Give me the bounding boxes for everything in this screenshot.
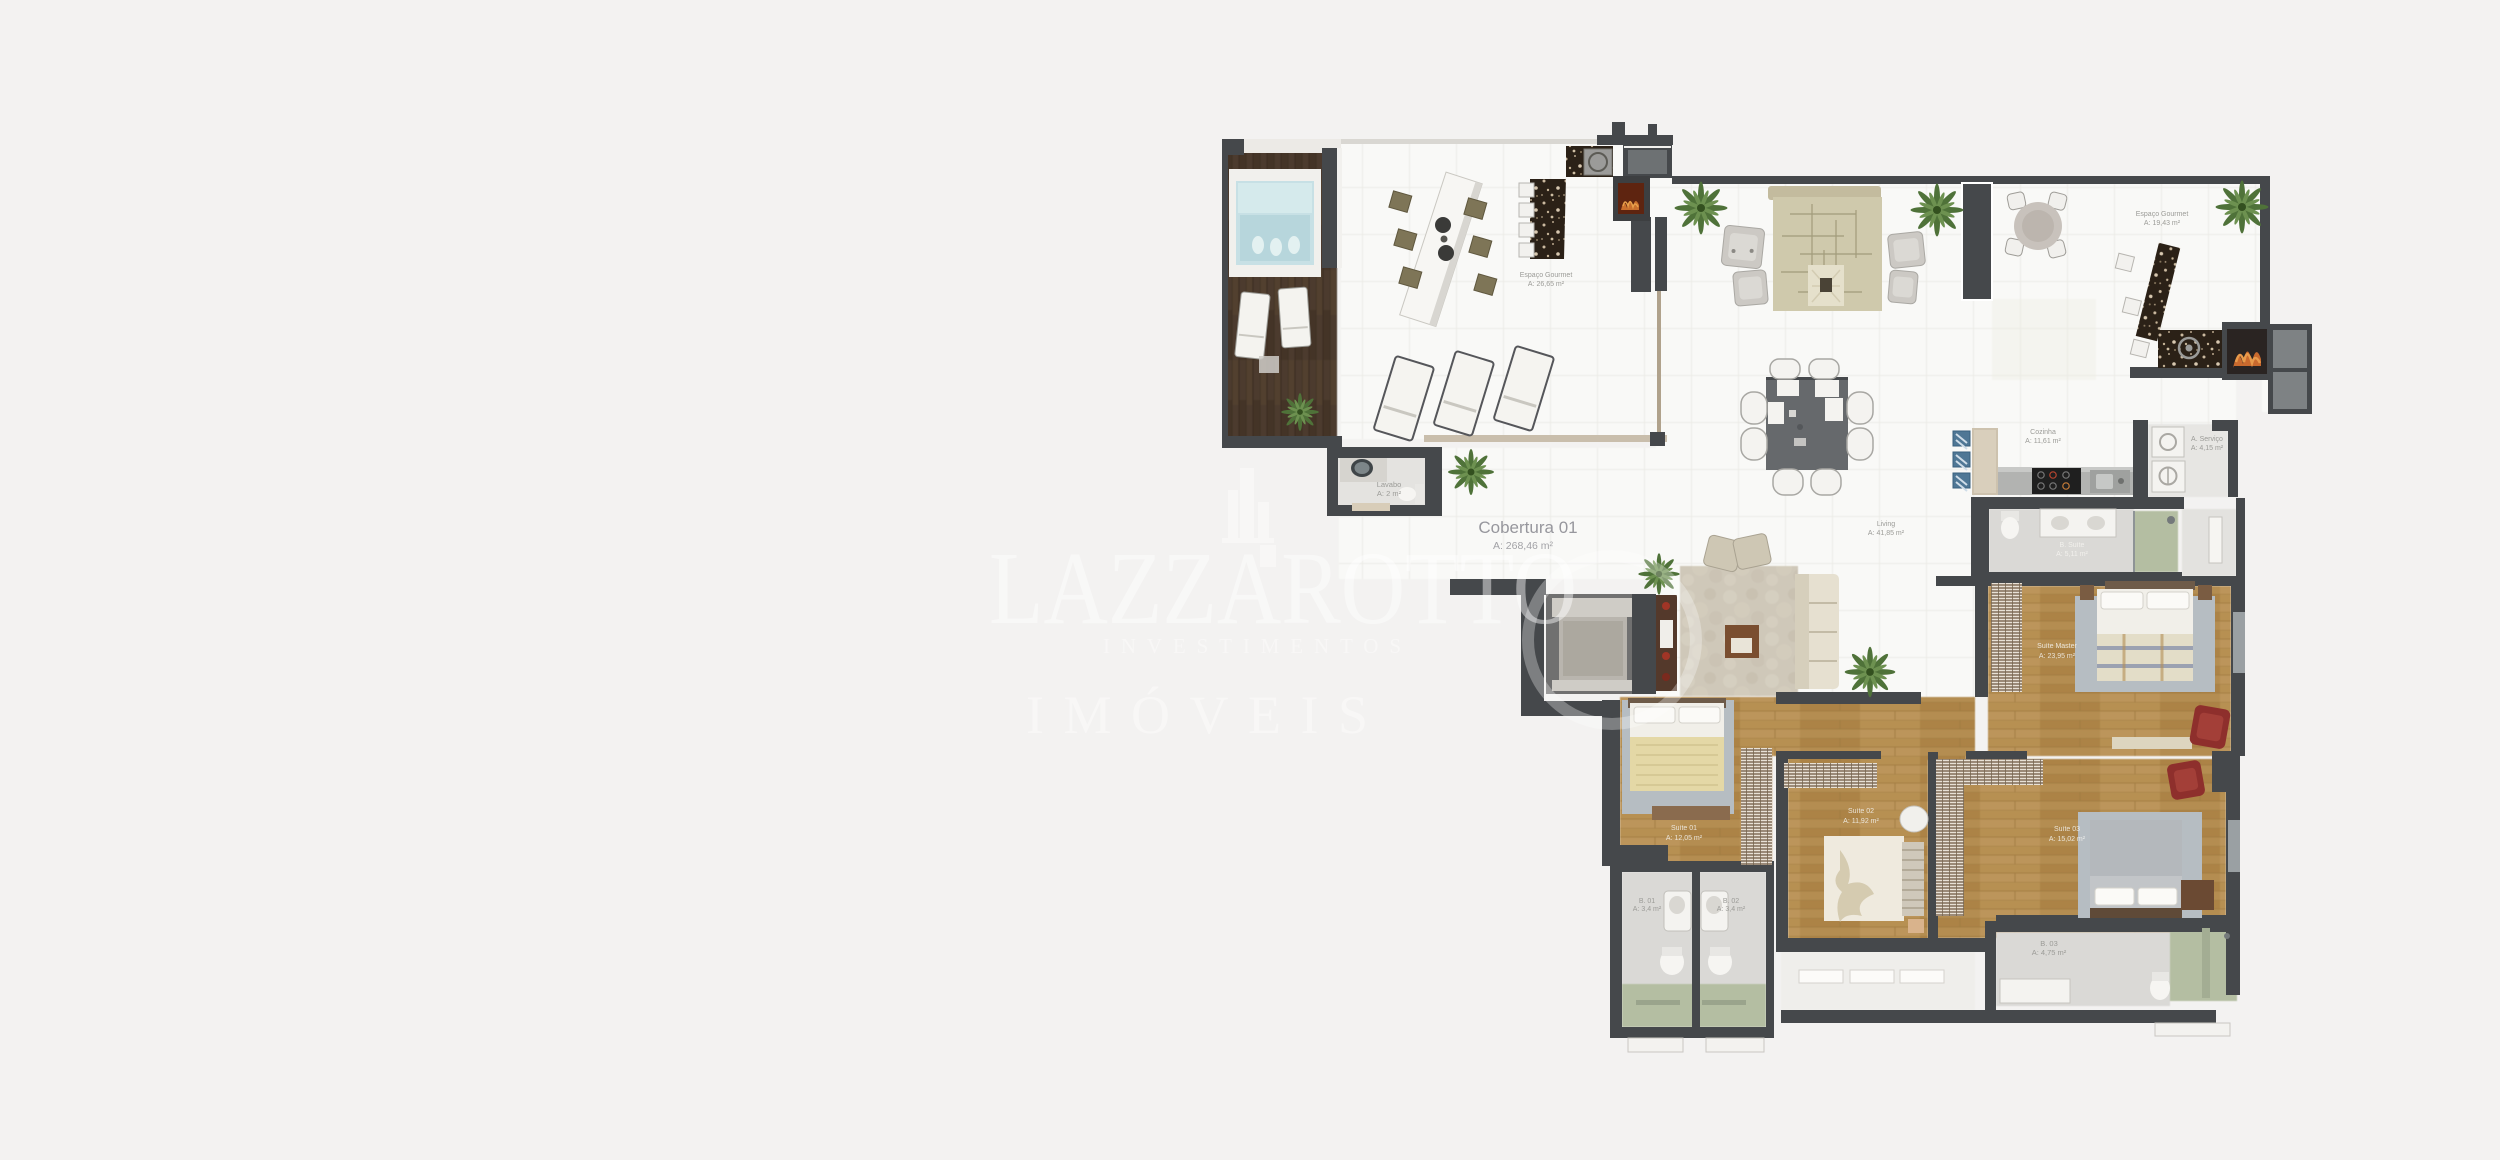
svg-text:A: 41,85 m²: A: 41,85 m² [1868, 530, 1905, 537]
svg-text:A: 23,95 m²: A: 23,95 m² [2039, 653, 2076, 660]
svg-text:A: 11,92 m²: A: 11,92 m² [1843, 818, 1879, 825]
svg-text:B. 01: B. 01 [1639, 898, 1655, 905]
svg-text:A: 19,43 m²: A: 19,43 m² [2144, 220, 2181, 227]
svg-text:A: 3,4 m²: A: 3,4 m² [1633, 906, 1662, 913]
svg-text:A: 5,11 m²: A: 5,11 m² [2056, 551, 2088, 558]
svg-text:Cozinha: Cozinha [2030, 429, 2056, 436]
svg-text:Suíte 01: Suíte 01 [1671, 825, 1697, 832]
svg-text:A: 11,61 m²: A: 11,61 m² [2025, 438, 2061, 445]
svg-text:A: 4,15 m²: A: 4,15 m² [2191, 445, 2224, 452]
svg-text:IMÓVEIS: IMÓVEIS [1026, 685, 1368, 745]
svg-text:B. 03: B. 03 [2040, 939, 2058, 948]
svg-text:A: 15,02 m²: A: 15,02 m² [2049, 836, 2086, 843]
svg-text:A: 2 m²: A: 2 m² [1377, 489, 1402, 498]
svg-text:Espaço Gourmet: Espaço Gourmet [1520, 272, 1573, 279]
svg-text:B. Suíte: B. Suíte [2060, 542, 2085, 549]
svg-text:Suíte Master: Suíte Master [2037, 643, 2077, 650]
svg-text:A: 3,4 m²: A: 3,4 m² [1717, 906, 1746, 913]
svg-text:A: 26,65 m²: A: 26,65 m² [1528, 281, 1565, 288]
svg-text:LAZZAROTTO: LAZZAROTTO [989, 531, 1577, 646]
svg-text:Lavabo: Lavabo [1377, 480, 1402, 489]
svg-text:Living: Living [1877, 521, 1895, 528]
svg-text:A: 4,75 m²: A: 4,75 m² [2032, 948, 2067, 957]
svg-text:A: 12,05 m²: A: 12,05 m² [1666, 835, 1703, 842]
svg-text:B. 02: B. 02 [1723, 898, 1739, 905]
svg-text:Espaço Gourmet: Espaço Gourmet [2136, 211, 2189, 218]
svg-text:Suíte 02: Suíte 02 [1848, 808, 1874, 815]
svg-text:A. Serviço: A. Serviço [2191, 436, 2223, 443]
svg-text:Suíte 03: Suíte 03 [2054, 826, 2080, 833]
